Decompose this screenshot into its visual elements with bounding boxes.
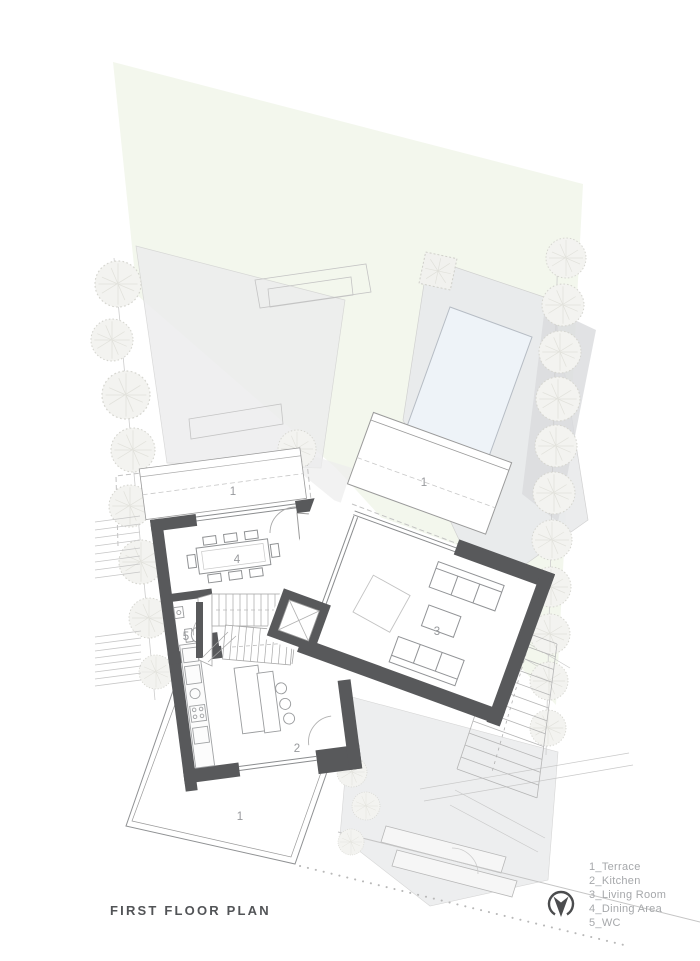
label-terrace-lower: 1 <box>237 811 243 823</box>
floor-plan-drawing: 1 1 1 2 3 4 5 <box>0 0 700 961</box>
page-title: FIRST FLOOR PLAN <box>110 903 271 918</box>
label-wc: 5 <box>183 631 189 643</box>
hedge-bush <box>419 252 457 290</box>
legend-item-dining-area: 4_Dining Area <box>589 902 666 916</box>
north-arrow-icon <box>549 892 573 917</box>
legend: 1_Terrace 2_Kitchen 3_Living Room 4_Dini… <box>589 860 666 930</box>
label-terrace-upper: 1 <box>421 477 427 489</box>
legend-item-terrace: 1_Terrace <box>589 860 666 874</box>
label-living-room: 3 <box>434 626 440 638</box>
floor-plan-sheet: 1 1 1 2 3 4 5 FIRST FLOOR PLAN 1_Terrace… <box>0 0 700 961</box>
legend-item-living-room: 3_Living Room <box>589 888 666 902</box>
legend-item-kitchen: 2_Kitchen <box>589 874 666 888</box>
label-terrace-front: 1 <box>230 486 236 498</box>
label-kitchen: 2 <box>294 743 300 755</box>
label-dining-area: 4 <box>234 554 241 566</box>
legend-item-wc: 5_WC <box>589 916 666 930</box>
